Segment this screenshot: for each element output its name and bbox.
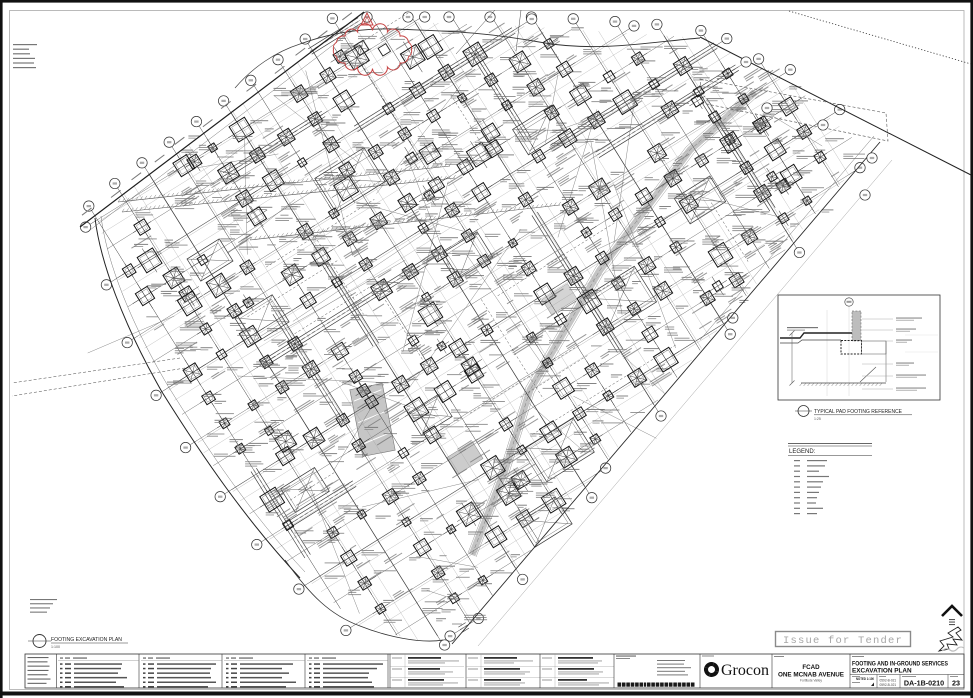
svg-text:FOOTING EXCAVATION PLAN: FOOTING EXCAVATION PLAN xyxy=(51,637,122,643)
svg-text:23: 23 xyxy=(952,679,960,688)
svg-text:FOOTING AND IN-GROUND SERVICES: FOOTING AND IN-GROUND SERVICES xyxy=(852,661,949,668)
svg-text:NOTED 1:100: NOTED 1:100 xyxy=(856,677,874,681)
svg-text:Issue for Tender: Issue for Tender xyxy=(783,635,903,647)
svg-text:EXCAVATION PLAN: EXCAVATION PLAN xyxy=(852,668,912,675)
svg-text:FCAD: FCAD xyxy=(802,664,820,671)
svg-text:1:100: 1:100 xyxy=(51,645,60,649)
svg-text:0592-B-021: 0592-B-021 xyxy=(880,683,897,687)
svg-text:1:25: 1:25 xyxy=(814,417,821,421)
svg-text:DA-1B-0210: DA-1B-0210 xyxy=(904,679,944,688)
svg-text:Grocon: Grocon xyxy=(721,662,769,679)
svg-text:ONE MCNAB AVENUE: ONE MCNAB AVENUE xyxy=(778,672,844,679)
svg-text:LEGEND:: LEGEND: xyxy=(789,449,816,455)
svg-text:TYPICAL PAD FOOTING REFERENCE: TYPICAL PAD FOOTING REFERENCE xyxy=(814,409,902,415)
svg-text:Fortitude Valley: Fortitude Valley xyxy=(800,679,822,683)
svg-text:0592-B-021: 0592-B-021 xyxy=(880,679,897,683)
